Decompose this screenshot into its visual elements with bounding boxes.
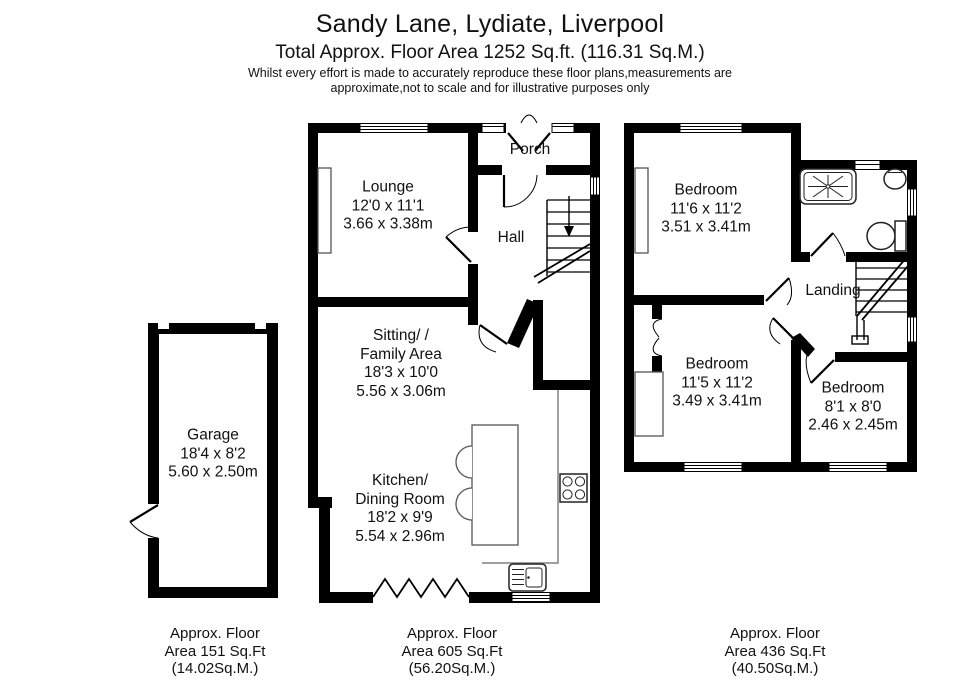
garage-area-footer: Approx. Floor Area 151 Sq.Ft (14.02Sq.M.… xyxy=(165,625,266,678)
ground-floor-area-footer: Approx. Floor Area 605 Sq.Ft (56.20Sq.M.… xyxy=(402,625,503,678)
room-name: Sitting/ / xyxy=(356,327,446,346)
room-name: Porch xyxy=(510,141,551,160)
footer-line: Area 605 Sq.Ft xyxy=(402,642,503,660)
bathroom-side-window xyxy=(908,189,917,216)
page-title: Sandy Lane, Lydiate, Liverpool xyxy=(0,10,980,39)
footer-line: Area 436 Sq.Ft xyxy=(725,642,826,660)
room-label-kitchen-dining: Kitchen/ Dining Room 18'2 x 9'9 5.54 x 2… xyxy=(355,472,445,546)
toilet-icon xyxy=(867,221,906,251)
room-label-porch: Porch xyxy=(510,141,551,160)
lounge-window xyxy=(360,124,428,133)
kitchen-sink-icon xyxy=(509,564,546,591)
room-label-garage: Garage 18'4 x 8'2 5.60 x 2.50m xyxy=(168,426,258,482)
room-dims-ft: 18'3 x 10'0 xyxy=(356,364,446,383)
footer-line: (56.20Sq.M.) xyxy=(402,660,503,678)
bedroom3-window xyxy=(829,463,887,472)
footer-line: (14.02Sq.M.) xyxy=(165,660,266,678)
bathroom-top-window xyxy=(855,161,880,170)
room-dims-m: 3.49 x 3.41m xyxy=(672,392,762,411)
room-dims-m: 3.51 x 3.41m xyxy=(661,218,751,237)
hob-icon xyxy=(560,474,587,502)
lounge-door-icon xyxy=(446,227,473,262)
sitting-door-icon xyxy=(479,325,507,352)
room-label-lounge: Lounge 12'0 x 11'1 3.66 x 3.38m xyxy=(343,178,433,234)
first-floor-area-footer: Approx. Floor Area 436 Sq.Ft (40.50Sq.M.… xyxy=(725,625,826,678)
room-label-bedroom2: Bedroom 11'5 x 11'2 3.49 x 3.41m xyxy=(672,355,762,411)
hall-window xyxy=(591,177,600,195)
footer-line: (40.50Sq.M.) xyxy=(725,660,826,678)
room-label-bedroom3: Bedroom 8'1 x 8'0 2.46 x 2.45m xyxy=(808,379,898,435)
footer-line: Approx. Floor xyxy=(402,625,503,643)
bedroom1-door-icon xyxy=(766,278,792,305)
shower-icon xyxy=(800,169,856,204)
room-dims-m: 2.46 x 2.45m xyxy=(808,416,898,435)
room-label-sitting-family-area: Sitting/ / Family Area 18'3 x 10'0 5.56 … xyxy=(356,327,446,401)
room-dims-ft: 11'6 x 11'2 xyxy=(661,200,751,219)
porch-window-left xyxy=(482,124,504,133)
bedroom1-wardrobe xyxy=(635,168,648,253)
room-name: Dining Room xyxy=(355,491,445,510)
stairs-down-arrow-icon xyxy=(564,196,574,237)
room-label-hall: Hall xyxy=(498,229,525,248)
lounge-wardrobe xyxy=(318,168,331,253)
room-dims-ft: 18'2 x 9'9 xyxy=(355,509,445,528)
room-dims-m: 5.54 x 2.96m xyxy=(355,528,445,547)
bedroom2-wardrobe xyxy=(635,372,663,436)
disclaimer: Whilst every effort is made to accuratel… xyxy=(0,66,980,96)
room-label-bedroom1: Bedroom 11'6 x 11'2 3.51 x 3.41m xyxy=(661,181,751,237)
porch-window-right xyxy=(552,124,574,133)
landing-side-window xyxy=(908,317,917,342)
room-dims-ft: 12'0 x 11'1 xyxy=(343,197,433,216)
room-dims-m: 5.60 x 2.50m xyxy=(168,463,258,482)
bathroom-sink-icon xyxy=(884,169,906,189)
room-name: Landing xyxy=(805,282,860,301)
disclaimer-line: approximate,not to scale and for illustr… xyxy=(0,81,980,96)
kitchen-window xyxy=(512,593,550,602)
total-area-subtitle: Total Approx. Floor Area 1252 Sq.ft. (11… xyxy=(0,42,980,64)
kitchen-island xyxy=(456,425,518,545)
room-dims-ft: 8'1 x 8'0 xyxy=(808,398,898,417)
disclaimer-line: Whilst every effort is made to accuratel… xyxy=(0,66,980,81)
room-dims-ft: 18'4 x 8'2 xyxy=(168,445,258,464)
porch-hall-door-icon xyxy=(504,175,537,207)
room-name: Hall xyxy=(498,229,525,248)
room-name: Garage xyxy=(168,426,258,445)
room-dims-m: 3.66 x 3.38m xyxy=(343,215,433,234)
floorplan-drawing xyxy=(0,0,980,692)
room-label-landing: Landing xyxy=(805,282,860,301)
room-name: Bedroom xyxy=(808,379,898,398)
bedroom2-window xyxy=(684,463,742,472)
room-dims-m: 5.56 x 3.06m xyxy=(356,383,446,402)
room-name: Bedroom xyxy=(661,181,751,200)
room-name: Lounge xyxy=(343,178,433,197)
room-name: Bedroom xyxy=(672,355,762,374)
room-name: Family Area xyxy=(356,346,446,365)
room-name: Kitchen/ xyxy=(355,472,445,491)
room-dims-ft: 11'5 x 11'2 xyxy=(672,374,762,393)
floorplan-page: Sandy Lane, Lydiate, Liverpool Total App… xyxy=(0,0,980,692)
footer-line: Area 151 Sq.Ft xyxy=(165,642,266,660)
garage-door-icon xyxy=(130,505,158,538)
footer-line: Approx. Floor xyxy=(165,625,266,643)
footer-line: Approx. Floor xyxy=(725,625,826,643)
bedroom1-window xyxy=(680,124,742,133)
open-boundary-zigzag xyxy=(373,579,469,597)
stairs-icon xyxy=(534,200,590,283)
bedroom2-closet xyxy=(652,303,662,372)
